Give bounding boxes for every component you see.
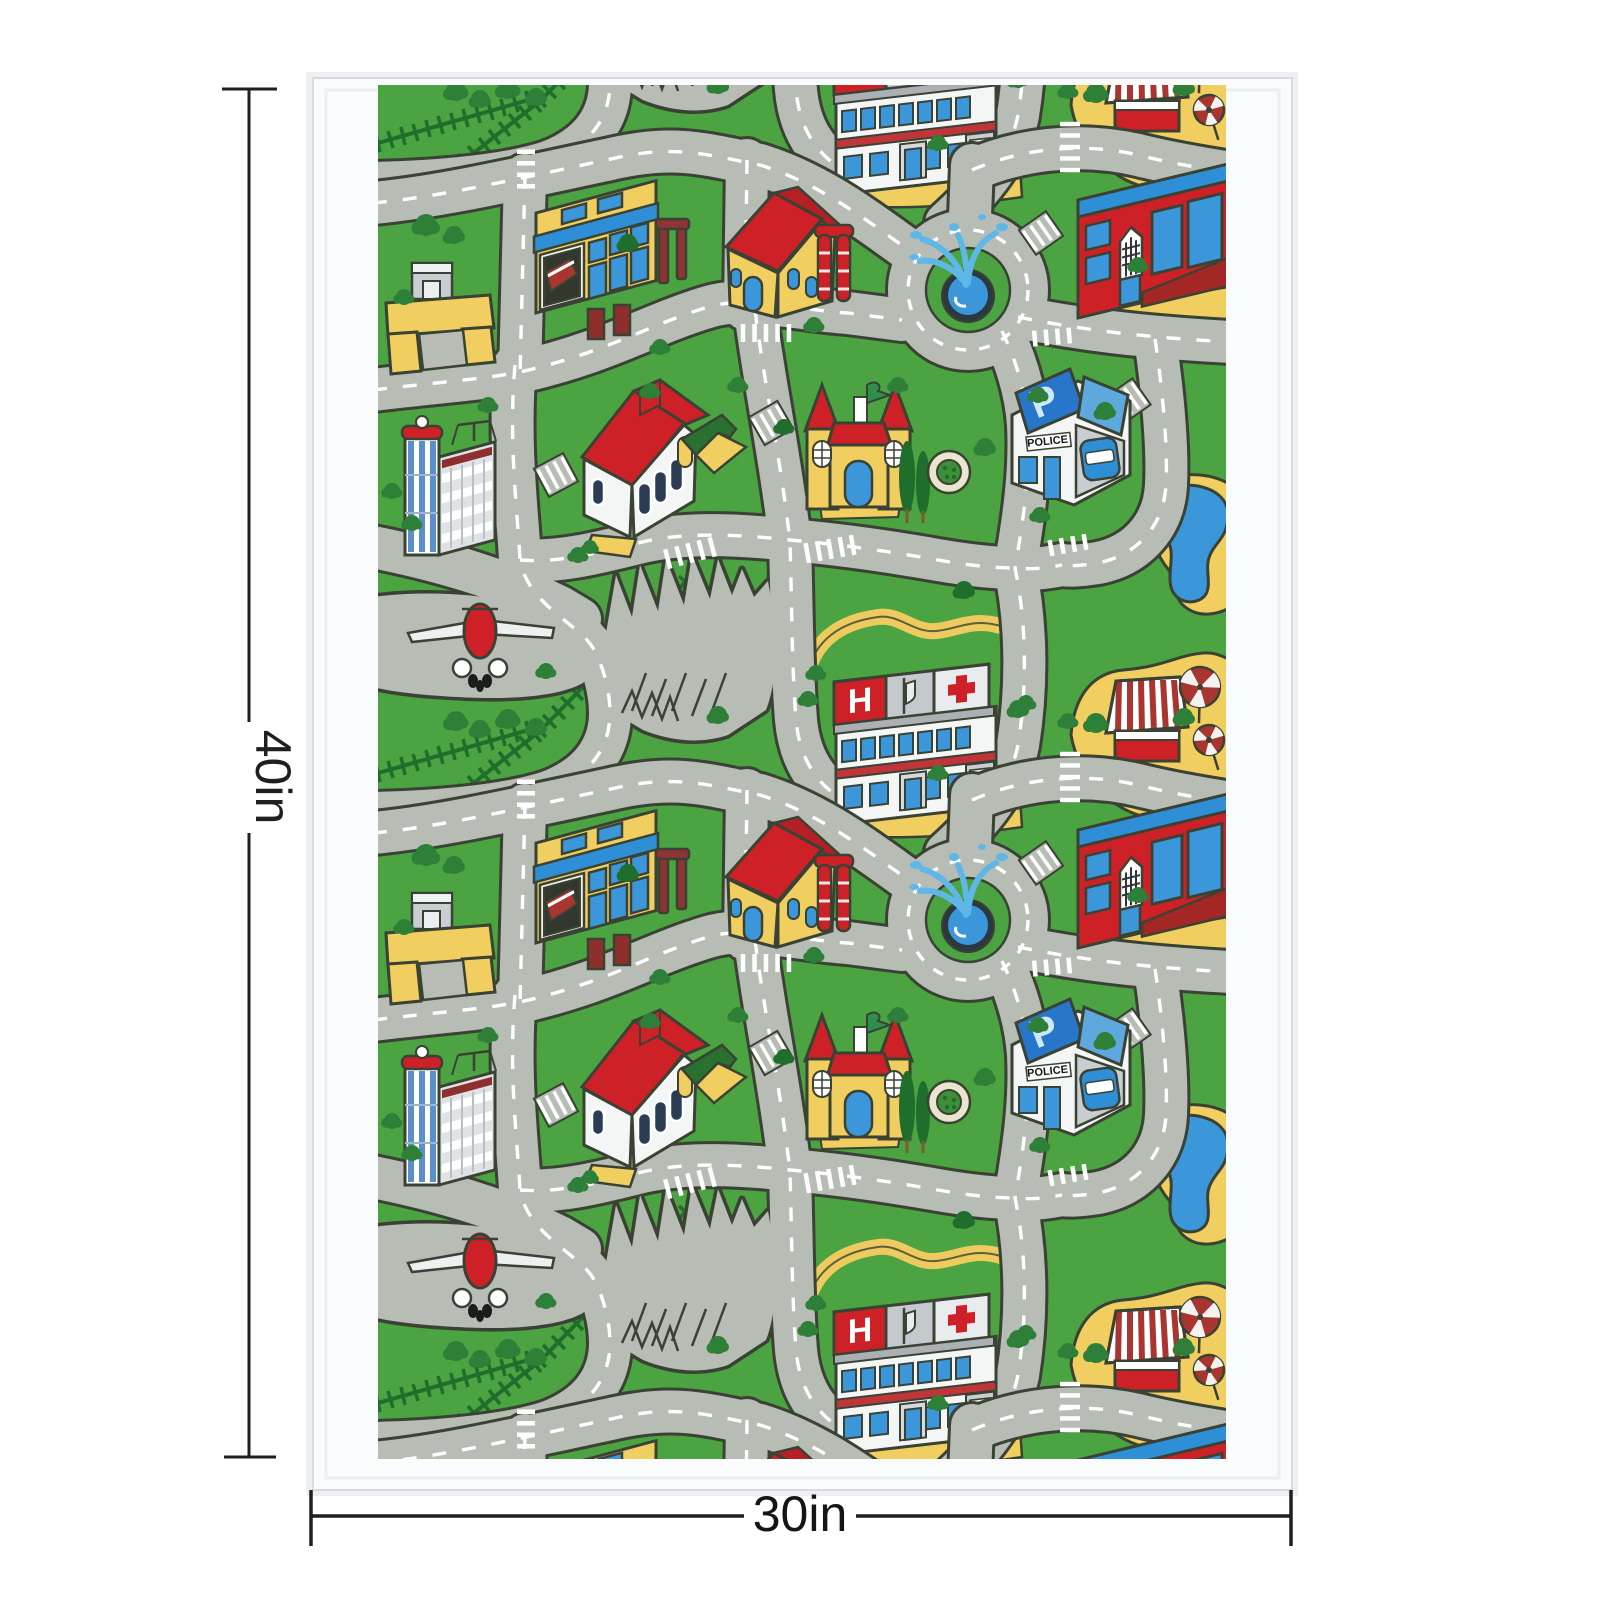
svg-text:40in: 40in <box>245 730 301 825</box>
svg-text:30in: 30in <box>753 1486 848 1542</box>
